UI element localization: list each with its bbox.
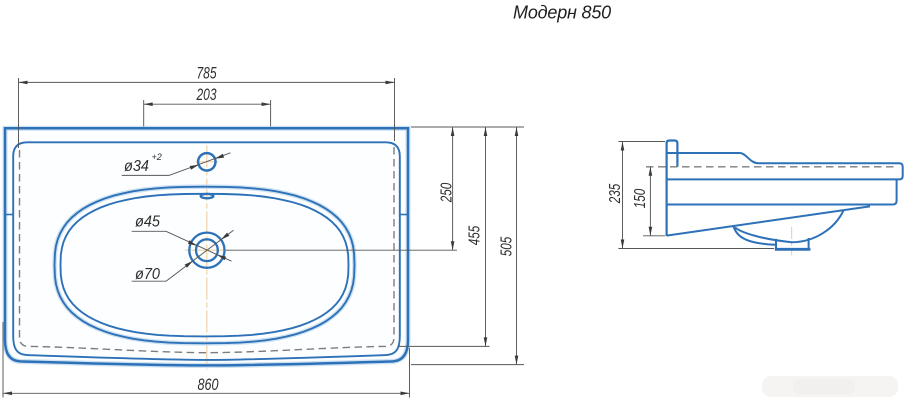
svg-text:235: 235 [607,184,624,204]
svg-text:250: 250 [439,183,456,203]
svg-text:ø45: ø45 [135,214,160,231]
svg-text:203: 203 [196,86,217,104]
svg-text:785: 785 [197,64,218,82]
svg-text:ø70: ø70 [135,266,160,283]
svg-text:150: 150 [632,189,649,209]
svg-text:Модерн 850: Модерн 850 [513,3,611,23]
svg-text:+2: +2 [152,152,162,162]
svg-text:455: 455 [467,226,484,246]
svg-text:505: 505 [499,237,516,257]
svg-text:860: 860 [198,376,220,394]
svg-text:ø34: ø34 [124,158,149,175]
